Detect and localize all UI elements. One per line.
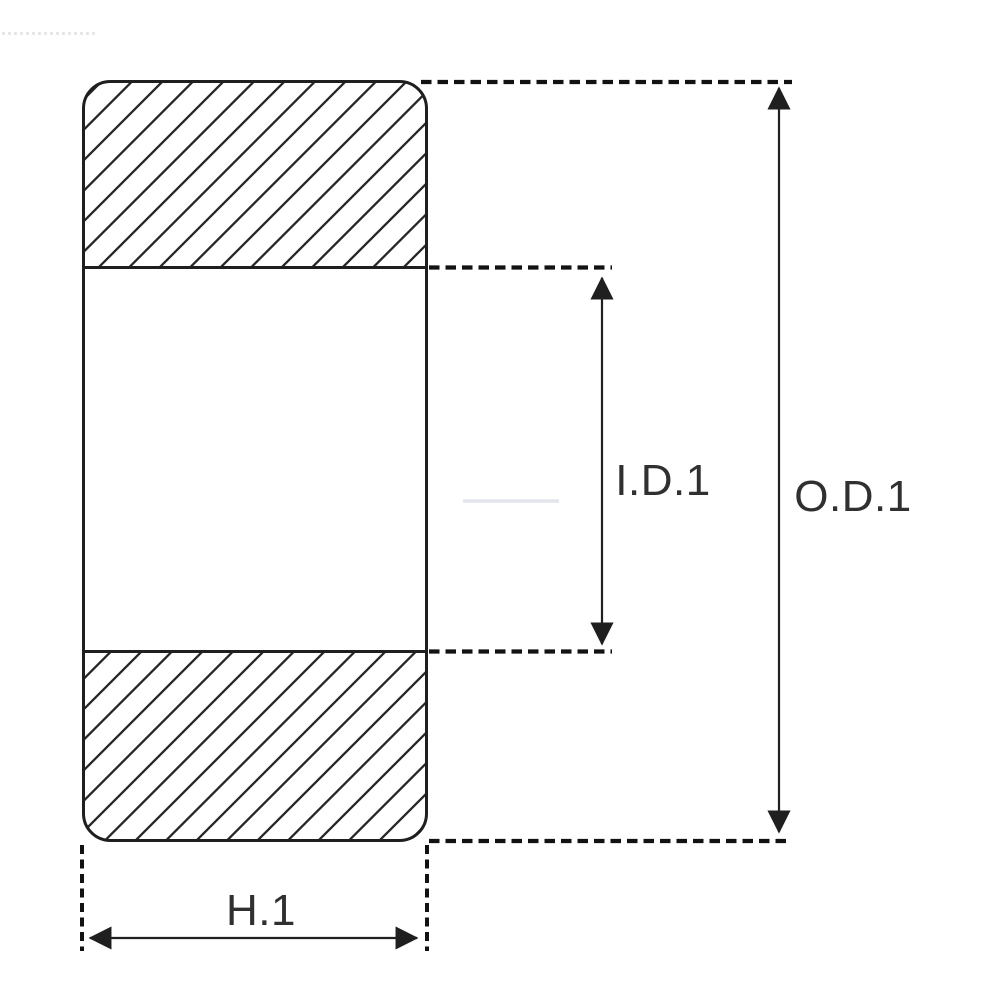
outer-ring-top-hatch (84, 82, 427, 268)
outer-ring-bottom-hatch (84, 652, 427, 841)
h-label: H.1 (226, 886, 296, 935)
technical-drawing-canvas: I.D.1 O.D.1 H.1 (0, 0, 1000, 1000)
bearing-cross-section (84, 82, 427, 841)
id-label: I.D.1 (615, 456, 710, 505)
od-label: O.D.1 (794, 472, 911, 521)
